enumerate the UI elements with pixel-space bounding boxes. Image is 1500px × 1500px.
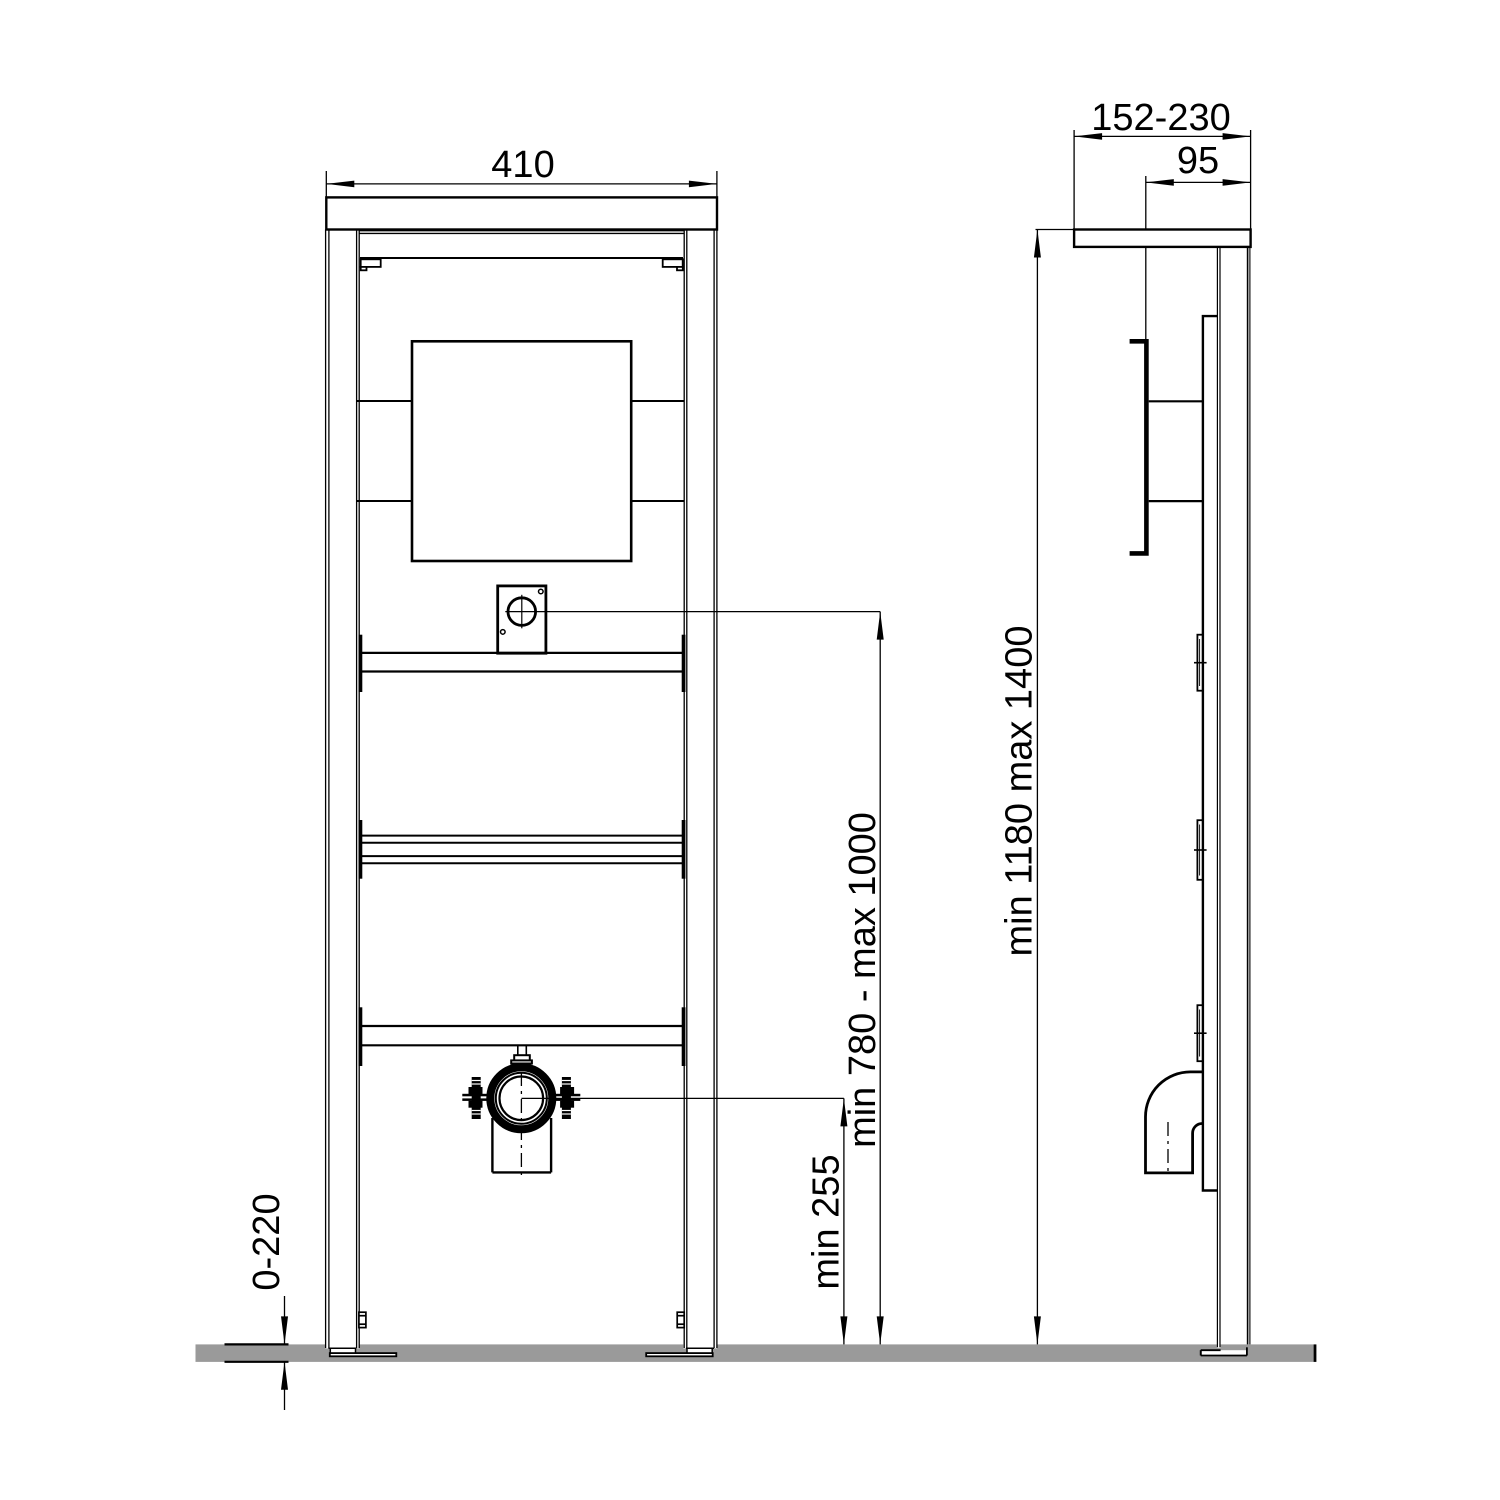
svg-text:410: 410 xyxy=(491,144,554,186)
svg-text:95: 95 xyxy=(1177,140,1219,182)
svg-text:152-230: 152-230 xyxy=(1091,97,1230,139)
svg-text:min 780 - max 1000: min 780 - max 1000 xyxy=(842,812,884,1148)
svg-text:min 1180 max 1400: min 1180 max 1400 xyxy=(999,626,1041,957)
svg-text:0-220: 0-220 xyxy=(246,1193,288,1290)
svg-text:min 255: min 255 xyxy=(806,1154,848,1289)
